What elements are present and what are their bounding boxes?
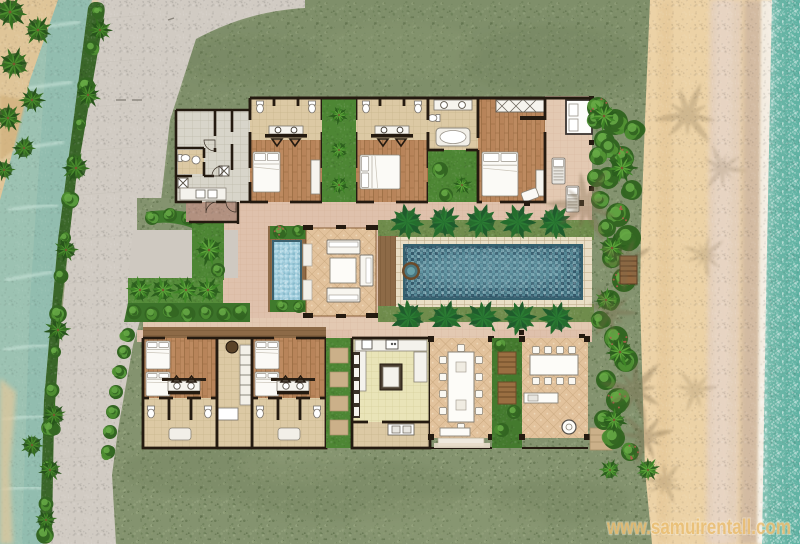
svg-text:www.samuirentall.com: www.samuirentall.com — [606, 516, 791, 539]
